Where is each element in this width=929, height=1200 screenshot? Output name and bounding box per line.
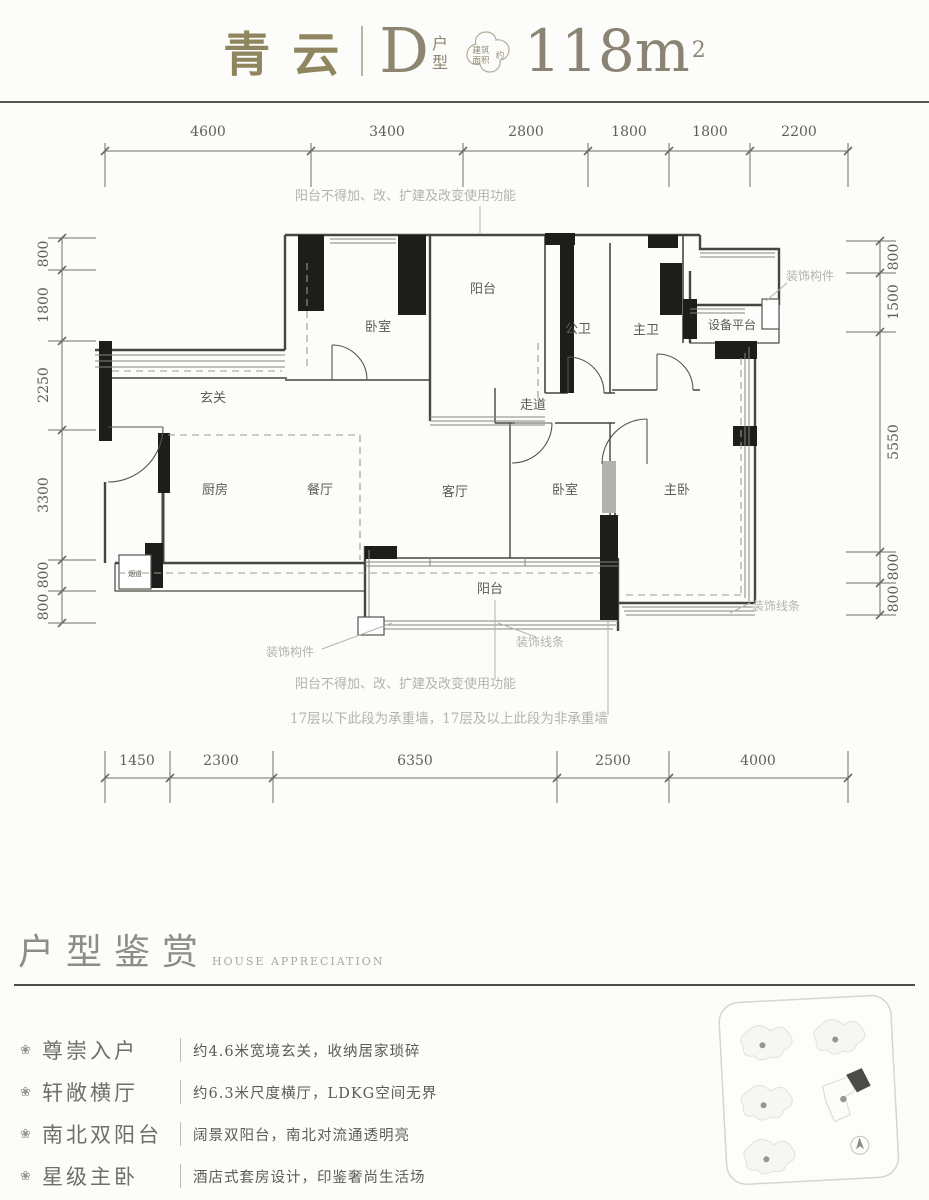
site-plan-drawing — [695, 991, 920, 1196]
feature-row: ❀ 轩敞横厅 约6.3米尺度横厅，LDKG空间无界 — [20, 1077, 490, 1107]
note-balcony-rule-top: 阳台不得加、改、扩建及改变使用功能 — [295, 188, 516, 204]
dim-bottom-4: 2500 — [595, 753, 631, 769]
section-title: 户型鉴赏 — [18, 923, 210, 975]
master-bedroom-door — [602, 419, 647, 464]
dim-top-3: 2800 — [508, 124, 544, 140]
dim-bottom-5: 4000 — [740, 753, 776, 769]
section-divider — [14, 984, 915, 986]
unit-suffix-top: 户 — [432, 35, 448, 53]
dimension-chain-left — [48, 234, 96, 627]
dim-left-2: 1800 — [36, 287, 52, 323]
room-foyer: 玄关 — [200, 391, 226, 406]
note-deco-line-right: 装饰线条 — [752, 599, 800, 613]
dim-right-4: 800 — [886, 554, 902, 581]
dim-left-5: 800 — [36, 562, 52, 589]
dim-top-5: 1800 — [692, 124, 728, 140]
dimension-labels-right: 800 1500 5550 800 800 — [886, 244, 902, 613]
dim-left-3: 2250 — [36, 367, 52, 403]
dim-right-2: 1500 — [886, 284, 902, 320]
dim-top-6: 2200 — [781, 124, 817, 140]
flower-bullet-icon: ❀ — [20, 1127, 42, 1142]
unit-type-letter: D — [379, 20, 429, 82]
svg-text:面积: 面积 — [473, 55, 491, 66]
feature-title: 星级主卧 — [42, 1161, 180, 1191]
feature-divider — [180, 1122, 181, 1146]
room-bath-public: 公卫 — [565, 322, 591, 337]
flower-bullet-icon: ❀ — [20, 1043, 42, 1058]
house-appreciation-section: 户型鉴赏 HOUSE APPRECIATION ❀ 尊崇入户 约4.6米宽境玄关… — [0, 903, 929, 1196]
floor-plan-drawing: 4600 3400 2800 1800 1800 2200 1450 2300 … — [0, 103, 929, 835]
feature-description: 阔景双阳台，南北对流通透明亮 — [193, 1124, 410, 1145]
room-balcony-bottom: 阳台 — [477, 582, 503, 597]
note-deco-line-bottom: 装饰线条 — [516, 635, 564, 649]
room-dining: 餐厅 — [307, 482, 333, 498]
feature-description: 约6.3米尺度横厅，LDKG空间无界 — [193, 1082, 437, 1103]
feature-list: ❀ 尊崇入户 约4.6米宽境玄关，收纳居家琐碎 ❀ 轩敞横厅 约6.3米尺度横厅… — [20, 1023, 490, 1191]
feature-divider — [180, 1080, 181, 1104]
dim-top-2: 3400 — [369, 124, 405, 140]
feature-row: ❀ 尊崇入户 约4.6米宽境玄关，收纳居家琐碎 — [20, 1035, 490, 1065]
room-bedroom-top: 卧室 — [365, 319, 391, 335]
title-divider — [361, 26, 363, 76]
non-bearing-segment — [602, 461, 616, 513]
title-bar: 青云 D 户 型 建筑 面积 约 118m2 — [0, 0, 929, 103]
feature-description: 酒店式套房设计，印鉴奢尚生活场 — [193, 1166, 426, 1187]
note-balcony-rule-bottom: 阳台不得加、改、扩建及改变使用功能 — [295, 676, 516, 692]
room-balcony-top: 阳台 — [470, 282, 496, 297]
feature-row: ❀ 星级主卧 酒店式套房设计，印鉴奢尚生活场 — [20, 1161, 490, 1191]
bedroom-top-door — [332, 345, 367, 380]
unit-type-suffix: 户 型 — [432, 35, 448, 72]
dimension-labels-top: 4600 3400 2800 1800 1800 2200 — [190, 124, 817, 140]
feature-divider — [180, 1164, 181, 1188]
dim-right-3: 5550 — [886, 424, 902, 460]
note-bearing-wall: 17层以下此段为承重墙，17层及以上此段为非承重墙 — [290, 711, 608, 727]
section-heading: 户型鉴赏 HOUSE APPRECIATION — [18, 923, 384, 975]
room-kitchen: 厨房 — [202, 482, 228, 498]
feature-divider — [180, 1038, 181, 1062]
dimension-labels-bottom: 1450 2300 6350 2500 4000 — [119, 753, 776, 769]
feature-row: ❀ 南北双阳台 阔景双阳台，南北对流通透明亮 — [20, 1119, 490, 1149]
room-flue: 烟道 — [128, 569, 142, 578]
area-value: 118m — [524, 22, 690, 80]
dim-right-5: 800 — [886, 586, 902, 613]
dim-bottom-1: 1450 — [119, 753, 155, 769]
dim-top-1: 4600 — [190, 124, 226, 140]
feature-description: 约4.6米宽境玄关，收纳居家琐碎 — [193, 1040, 421, 1061]
site-plan-thumbnail — [695, 991, 920, 1196]
note-deco-part-bottom: 装饰构件 — [266, 644, 314, 659]
deco-part-top-box — [762, 299, 779, 329]
room-bath-master: 主卫 — [633, 323, 659, 338]
unit-suffix-bottom: 型 — [432, 54, 448, 72]
dim-left-4: 3300 — [36, 477, 52, 513]
room-labels: 卧室 阳台 公卫 主卫 设备平台 走道 玄关 厨房 餐厅 客厅 卧室 主卧 阳台… — [128, 282, 756, 597]
svg-text:建筑: 建筑 — [473, 45, 491, 56]
area-superscript: 2 — [692, 38, 706, 63]
feature-title: 尊崇入户 — [42, 1035, 180, 1065]
bedroom-mid-door — [512, 423, 552, 463]
quatrefoil-icon: 建筑 面积 约 — [460, 29, 512, 81]
room-equipment-platform: 设备平台 — [708, 317, 756, 332]
section-subtitle: HOUSE APPRECIATION — [212, 955, 384, 968]
deco-part-bottom-box — [358, 617, 384, 635]
room-master-bedroom: 主卧 — [664, 483, 690, 498]
dim-bottom-3: 6350 — [397, 753, 433, 769]
dim-left-6: 800 — [36, 594, 52, 621]
flower-bullet-icon: ❀ — [20, 1085, 42, 1100]
feature-title: 轩敞横厅 — [42, 1077, 180, 1107]
dim-top-4: 1800 — [611, 124, 647, 140]
floor-plan: 4600 3400 2800 1800 1800 2200 1450 2300 … — [0, 103, 929, 835]
room-bedroom-mid: 卧室 — [552, 482, 578, 498]
room-corridor: 走道 — [520, 398, 546, 413]
area-quatrefoil-badge: 建筑 面积 约 — [460, 29, 512, 81]
entry-door — [108, 427, 163, 482]
svg-text:约: 约 — [496, 50, 505, 61]
project-name: 青云 — [223, 16, 361, 85]
note-deco-part-top: 装饰构件 — [786, 268, 834, 283]
feature-title: 南北双阳台 — [42, 1119, 180, 1149]
flower-bullet-icon: ❀ — [20, 1169, 42, 1184]
master-bath-door — [657, 354, 693, 390]
room-living: 客厅 — [442, 484, 468, 500]
dim-right-1: 800 — [886, 244, 902, 271]
dimension-chain-top — [101, 143, 852, 187]
dim-bottom-2: 2300 — [203, 753, 239, 769]
dim-left-1: 800 — [36, 241, 52, 268]
